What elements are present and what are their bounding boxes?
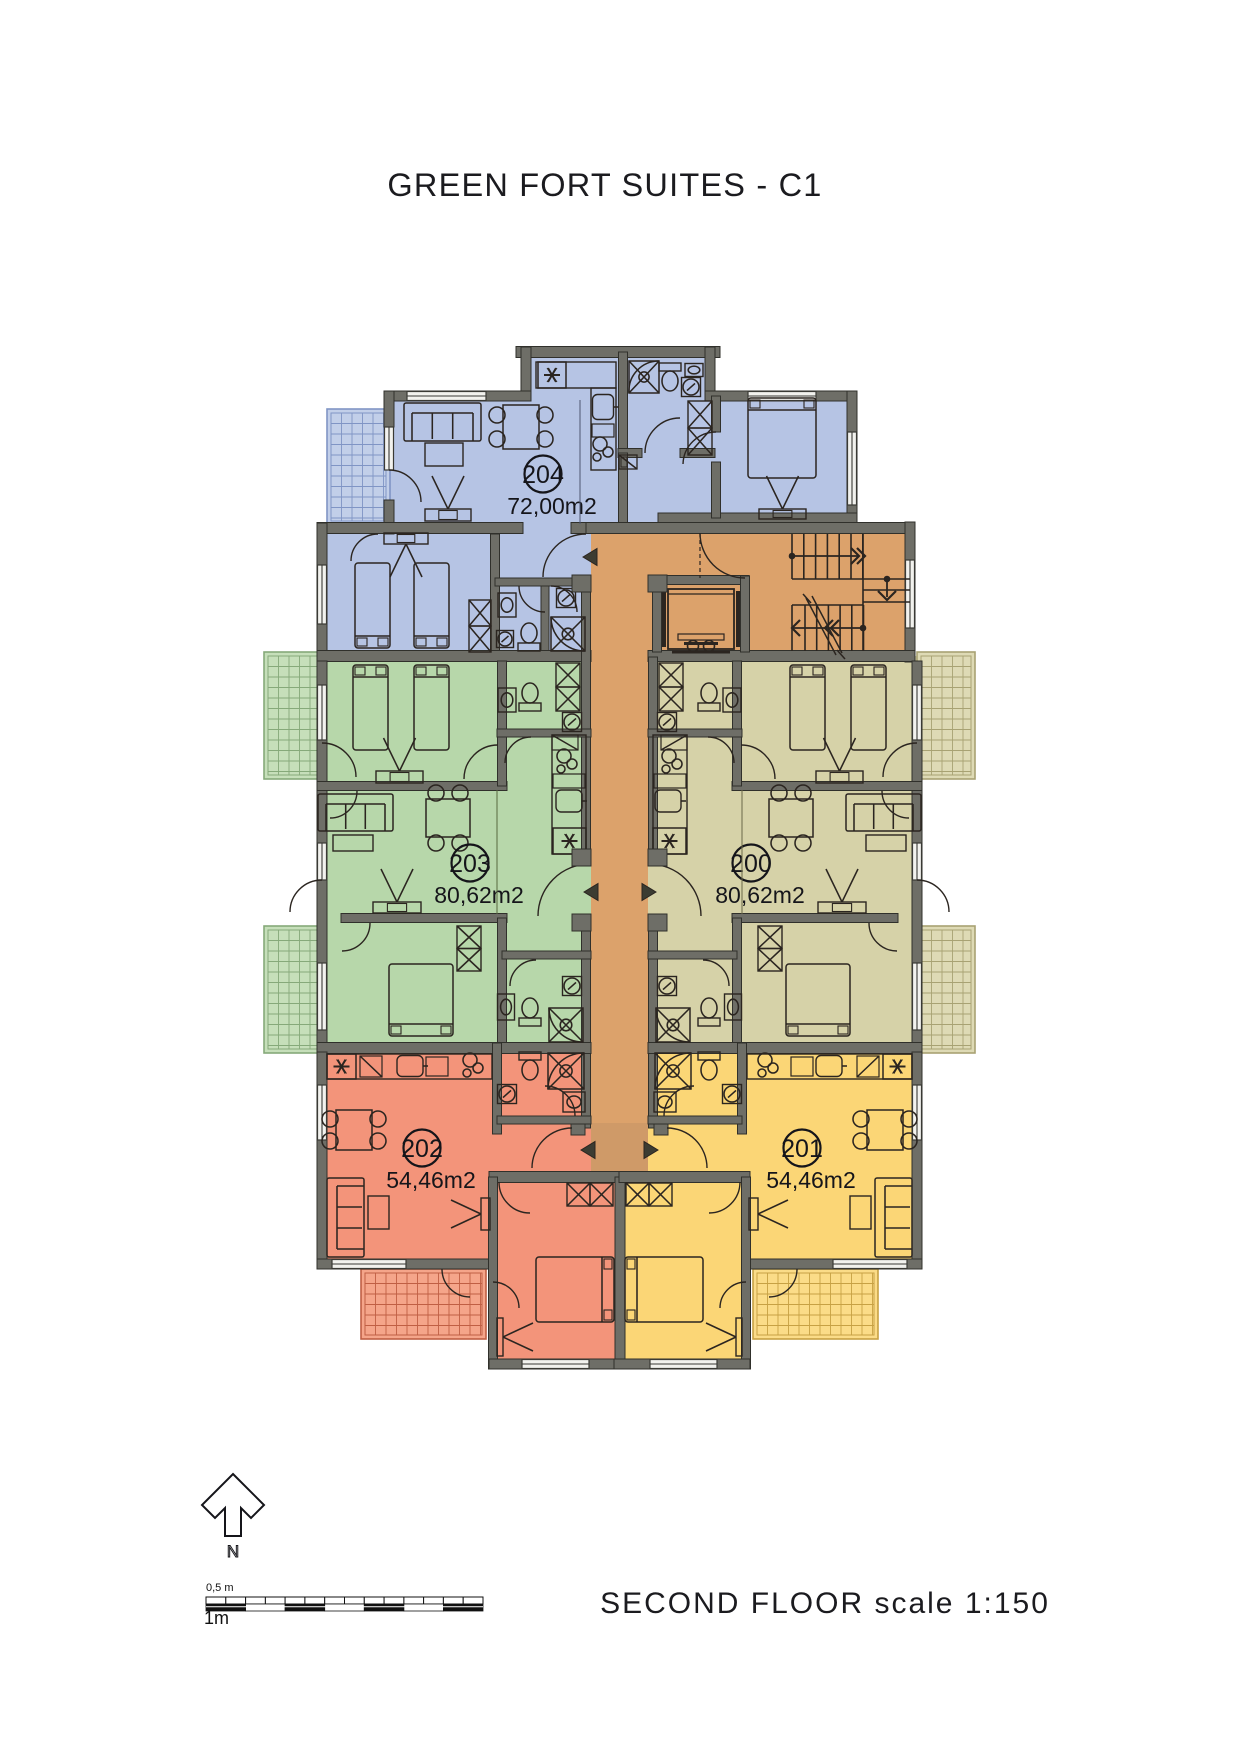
svg-text:0,5 m: 0,5 m	[206, 1582, 234, 1594]
svg-text:54,46m2: 54,46m2	[386, 1167, 476, 1193]
svg-text:203: 203	[449, 850, 491, 878]
svg-text:N: N	[227, 1542, 239, 1561]
svg-text:SECOND FLOOR scale 1:150: SECOND FLOOR scale 1:150	[600, 1587, 1050, 1620]
svg-text:54,46m2: 54,46m2	[766, 1167, 856, 1193]
svg-text:1m: 1m	[204, 1608, 229, 1628]
svg-text:201: 201	[781, 1135, 823, 1163]
svg-text:204: 204	[522, 461, 564, 489]
svg-text:202: 202	[401, 1135, 443, 1163]
svg-text:200: 200	[730, 850, 772, 878]
svg-text:80,62m2: 80,62m2	[715, 882, 805, 908]
svg-text:80,62m2: 80,62m2	[434, 882, 524, 908]
svg-text:72,00m2: 72,00m2	[507, 493, 597, 519]
svg-text:GREEN FORT SUITES - C1: GREEN FORT SUITES - C1	[387, 167, 822, 203]
